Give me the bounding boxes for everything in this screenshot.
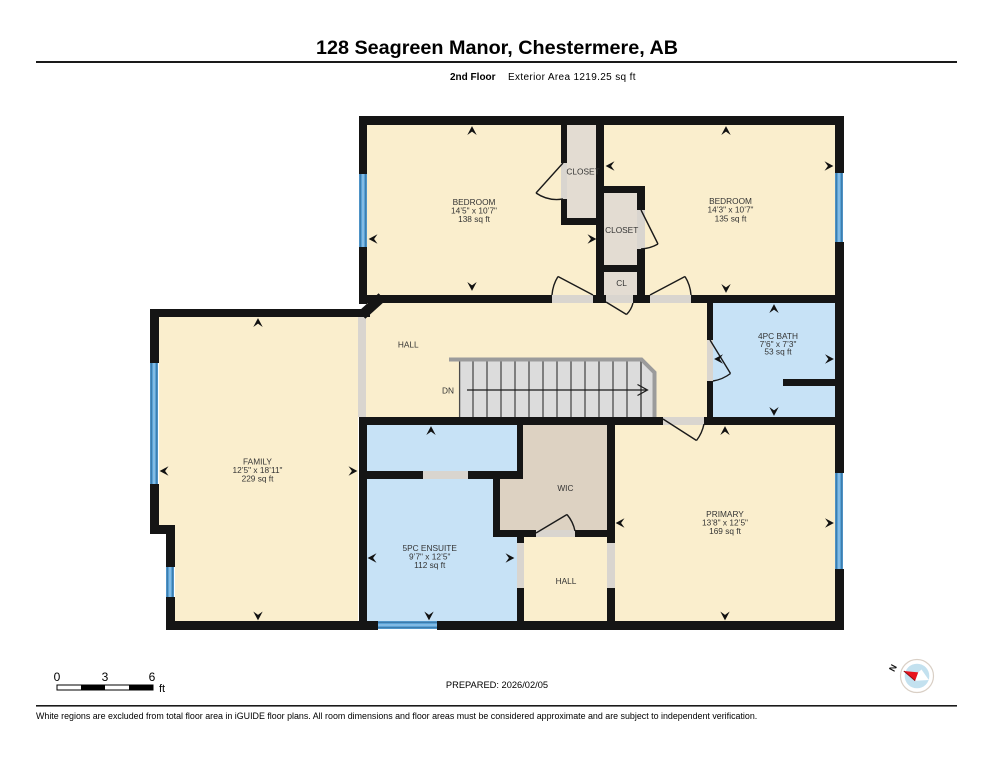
svg-text:CL: CL	[616, 278, 627, 288]
svg-text:CLOSET: CLOSET	[566, 167, 599, 177]
svg-text:138 sq ft: 138 sq ft	[458, 214, 491, 224]
svg-text:ft: ft	[159, 683, 165, 695]
svg-text:3: 3	[102, 670, 109, 684]
svg-text:CLOSET: CLOSET	[605, 225, 638, 235]
svg-text:112 sq ft: 112 sq ft	[414, 560, 446, 570]
svg-text:229 sq ft: 229 sq ft	[242, 474, 275, 484]
svg-text:6: 6	[149, 670, 156, 684]
svg-text:2nd Floor: 2nd Floor	[450, 72, 496, 83]
svg-text:53 sq ft: 53 sq ft	[764, 347, 792, 357]
svg-text:DN: DN	[442, 386, 454, 396]
svg-text:135 sq ft: 135 sq ft	[715, 213, 748, 223]
svg-text:WIC: WIC	[557, 483, 573, 493]
svg-text:PREPARED: 2026/02/05: PREPARED: 2026/02/05	[446, 680, 548, 690]
svg-text:White regions are excluded fro: White regions are excluded from total fl…	[36, 711, 757, 721]
svg-text:169 sq ft: 169 sq ft	[709, 526, 742, 536]
svg-text:0: 0	[54, 670, 61, 684]
svg-text:Exterior Area 1219.25 sq ft: Exterior Area 1219.25 sq ft	[508, 72, 636, 83]
svg-text:128 Seagreen Manor, Chestermer: 128 Seagreen Manor, Chestermere, AB	[316, 37, 678, 59]
svg-text:HALL: HALL	[398, 340, 419, 350]
svg-text:N: N	[887, 663, 899, 673]
svg-text:HALL: HALL	[556, 576, 577, 586]
